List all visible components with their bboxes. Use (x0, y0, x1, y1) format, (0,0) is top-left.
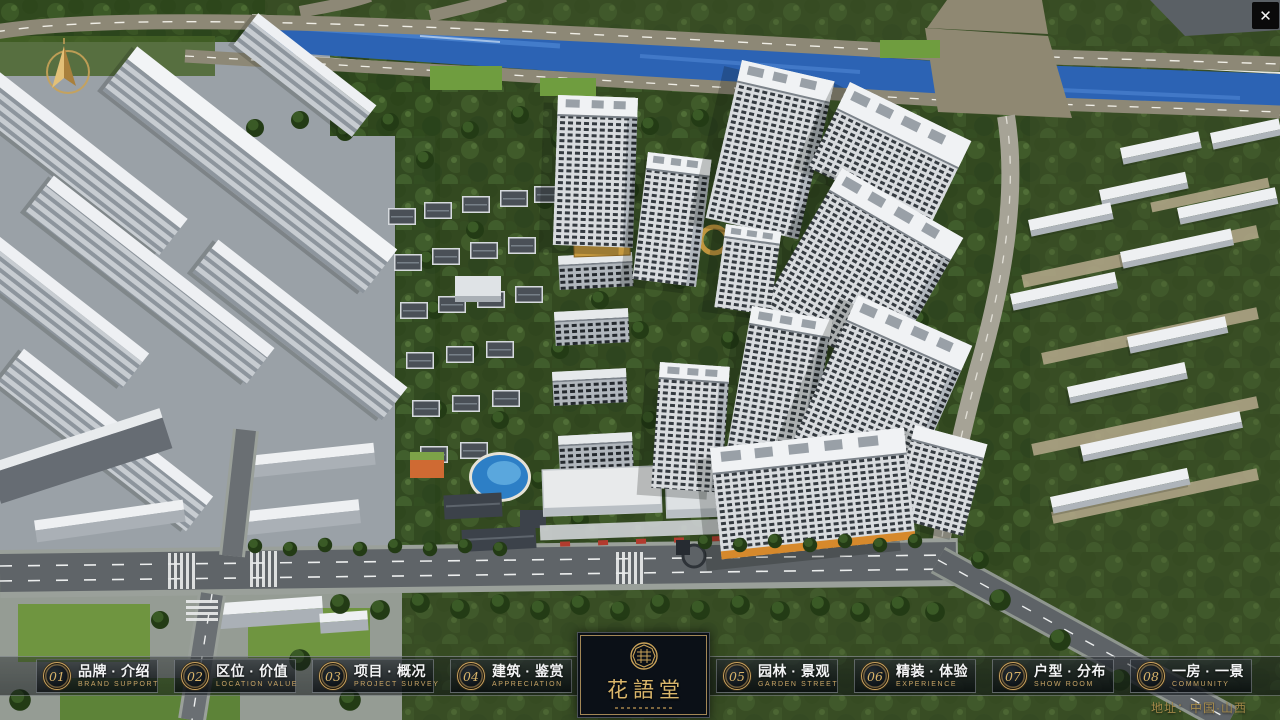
nav-item-subtitle: EXPERIENCE (896, 681, 968, 688)
nav-item-labels: 精装 · 体验 EXPERIENCE (896, 664, 968, 688)
nav-group-left: 01 品牌 · 介绍 BRAND SUPPORT 02 区位 · 价值 LOCA… (36, 659, 572, 693)
nav-item-title: 精装 · 体验 (896, 664, 968, 679)
nav-item-title: 建筑 · 鉴赏 (492, 664, 564, 679)
nav-item-labels: 一房 · 一景 COMMUNITY (1172, 664, 1244, 688)
logo-title: 花語堂 (602, 674, 685, 704)
nav-item-title: 区位 · 价值 (216, 664, 298, 679)
nav-group-right: 05 园林 · 景观 GARDEN STREET 06 精装 · 体验 EXPE… (716, 659, 1252, 693)
nav-item-title: 品牌 · 介绍 (78, 664, 159, 679)
nav-item-brand-intro[interactable]: 01 品牌 · 介绍 BRAND SUPPORT (36, 659, 158, 693)
nav-item-title: 一房 · 一景 (1172, 664, 1244, 679)
nav-item-number-badge: 05 (723, 662, 751, 690)
nav-item-community[interactable]: 08 一房 · 一景 COMMUNITY (1130, 659, 1252, 693)
masterplan-render (0, 0, 1280, 720)
nav-item-number-badge: 02 (181, 662, 209, 690)
nav-item-subtitle: GARDEN STREET (758, 681, 838, 688)
logo-subtitle-rule (615, 707, 673, 709)
address-text: 地址：中国·山西 (1151, 699, 1247, 716)
nav-item-subtitle: PROJECT SURVEY (354, 681, 440, 688)
nav-item-labels: 品牌 · 介绍 BRAND SUPPORT (78, 664, 159, 688)
presentation-window: ✕ 01 品牌 · 介绍 BRAND SUPPORT 02 区位 · 价值 LO… (0, 0, 1280, 720)
nav-item-subtitle: SHOW ROOM (1034, 681, 1106, 688)
nav-item-architecture[interactable]: 04 建筑 · 鉴赏 APPRECIATION (450, 659, 572, 693)
nav-item-garden-view[interactable]: 05 园林 · 景观 GARDEN STREET (716, 659, 838, 693)
nav-item-experience[interactable]: 06 精装 · 体验 EXPERIENCE (854, 659, 976, 693)
close-button[interactable]: ✕ (1252, 2, 1279, 29)
nav-item-subtitle: COMMUNITY (1172, 681, 1244, 688)
logo-emblem-icon (629, 641, 659, 671)
nav-item-title: 园林 · 景观 (758, 664, 838, 679)
nav-item-subtitle: LOCATION VALUE (216, 681, 298, 688)
nav-item-number-badge: 07 (999, 662, 1027, 690)
nav-item-title: 户型 · 分布 (1034, 664, 1106, 679)
nav-item-labels: 建筑 · 鉴赏 APPRECIATION (492, 664, 564, 688)
nav-item-title: 项目 · 概况 (354, 664, 440, 679)
nav-item-number-badge: 06 (861, 662, 889, 690)
nav-item-labels: 项目 · 概况 PROJECT SURVEY (354, 664, 440, 688)
nav-item-project-survey[interactable]: 03 项目 · 概况 PROJECT SURVEY (312, 659, 434, 693)
nav-item-labels: 区位 · 价值 LOCATION VALUE (216, 664, 298, 688)
logo-panel[interactable]: 花語堂 (577, 632, 710, 718)
nav-item-subtitle: APPRECIATION (492, 681, 564, 688)
nav-item-subtitle: BRAND SUPPORT (78, 681, 159, 688)
nav-item-floor-plans[interactable]: 07 户型 · 分布 SHOW ROOM (992, 659, 1114, 693)
nav-item-number-badge: 04 (457, 662, 485, 690)
nav-item-location-value[interactable]: 02 区位 · 价值 LOCATION VALUE (174, 659, 296, 693)
nav-item-number-badge: 03 (319, 662, 347, 690)
nav-item-labels: 户型 · 分布 SHOW ROOM (1034, 664, 1106, 688)
nav-item-number-badge: 08 (1137, 662, 1165, 690)
nav-item-number-badge: 01 (43, 662, 71, 690)
nav-item-labels: 园林 · 景观 GARDEN STREET (758, 664, 838, 688)
